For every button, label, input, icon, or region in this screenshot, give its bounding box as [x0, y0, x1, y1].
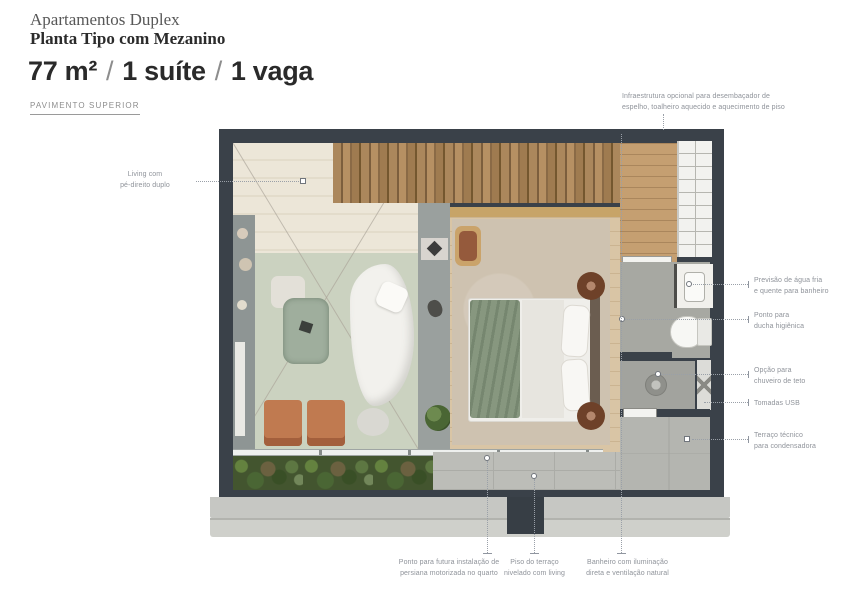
pillow — [560, 304, 591, 358]
note-living: Living com pé-direito duplo — [98, 170, 192, 191]
toilet-tank — [697, 318, 712, 346]
wood-slat-panel — [333, 143, 620, 203]
terrace-pavers — [433, 452, 620, 490]
bedroom-wall-strip — [450, 207, 620, 217]
spec-area: 77 m² — [28, 56, 97, 86]
armchair — [264, 400, 302, 446]
leader-usb — [704, 402, 748, 403]
note-usb: Tomadas USB — [754, 399, 842, 410]
spec-separator: / — [106, 56, 113, 86]
unit-specs: 77 m²/1 suíte/1 vaga — [28, 56, 313, 86]
leader-bathroom-tick — [617, 553, 626, 554]
leader-tech-terrace-tick — [748, 436, 749, 443]
desk-artwork — [421, 238, 448, 260]
structural-column — [507, 497, 544, 534]
shower-drain — [645, 374, 667, 396]
leader-infrastructure — [663, 114, 664, 130]
floor-label: PAVIMENTO SUPERIOR — [30, 101, 140, 115]
leader-ceiling-shower-tick — [748, 371, 749, 378]
leader-bathroom — [621, 134, 622, 553]
note-bathroom: Banheiro com iluminação direta e ventila… — [570, 558, 685, 579]
nightstand — [577, 272, 605, 300]
plan-title: Planta Tipo com Mezanino — [30, 29, 225, 49]
leader-shower-point-tick — [748, 316, 749, 323]
decor-plate — [237, 228, 248, 239]
bed-sheet — [522, 300, 564, 418]
leader-blinds — [487, 461, 488, 553]
spec-separator: / — [215, 56, 222, 86]
leader-terrace-floor — [534, 479, 535, 553]
leader-blinds-tick — [483, 553, 492, 554]
nightstand — [577, 402, 605, 430]
technical-terrace-floor — [620, 417, 710, 490]
spec-parking: 1 vaga — [231, 56, 313, 86]
hall-floor — [620, 143, 677, 262]
note-tech-terrace: Terraço técnico para condensadora — [754, 431, 842, 452]
bedroom-armchair-seat — [459, 231, 477, 261]
shelf-counter — [235, 342, 245, 436]
leader-ceiling-shower — [661, 374, 748, 375]
leader-usb-tick — [748, 399, 749, 406]
leader-tech-terrace — [692, 439, 748, 440]
pouf — [357, 408, 389, 436]
bed-blanket — [470, 300, 520, 418]
leader-living-marker — [300, 178, 306, 184]
shower-wall — [620, 352, 672, 361]
leader-water — [693, 284, 748, 285]
leader-shower-point — [625, 319, 748, 320]
plant — [425, 405, 451, 431]
duct-shaft — [695, 358, 713, 412]
balcony-slab-edge — [210, 518, 730, 537]
leader-living — [196, 181, 303, 182]
building-name: Apartamentos Duplex — [30, 10, 180, 30]
note-shower-point: Ponto para ducha higiênica — [754, 311, 842, 332]
spec-suite: 1 suíte — [122, 56, 205, 86]
closet — [677, 141, 712, 257]
terrace-planter — [233, 456, 433, 490]
note-infrastructure: Infraestrutura opcional para desembaçado… — [622, 92, 817, 113]
note-water: Previsão de água fria e quente para banh… — [754, 276, 842, 297]
balcony-slab — [210, 497, 730, 518]
leader-water-tick — [748, 281, 749, 288]
decor-plate — [239, 258, 252, 271]
floor-plan-page: Apartamentos Duplex Planta Tipo com Meza… — [0, 0, 842, 596]
leader-terrace-floor-tick — [530, 553, 539, 554]
decor-plate — [237, 300, 247, 310]
leader-tech-terrace-marker — [684, 436, 690, 442]
bathroom-sink — [684, 272, 705, 302]
note-ceiling-shower: Opção para chuveiro de teto — [754, 366, 842, 387]
armchair — [307, 400, 345, 446]
leader-water-marker — [686, 281, 692, 287]
